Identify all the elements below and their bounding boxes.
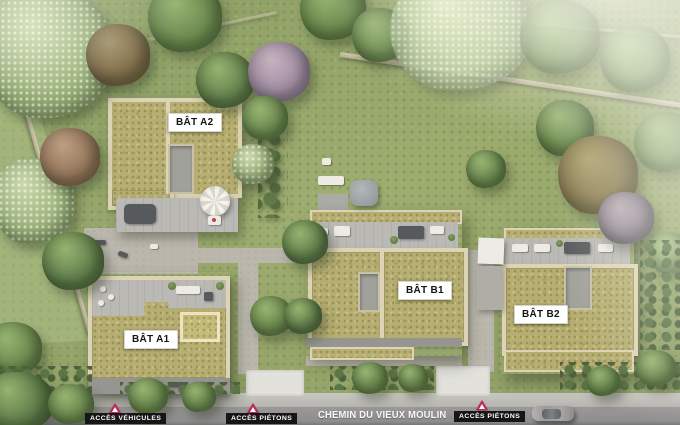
building-b2 (500, 228, 634, 374)
tree (232, 144, 274, 184)
building-a1-terrace-mid (144, 280, 170, 302)
tree (586, 366, 620, 396)
roof-plant (390, 236, 398, 244)
tree (634, 112, 680, 172)
roof-furniture (534, 244, 550, 252)
roof-furniture (212, 218, 216, 222)
tree (86, 24, 150, 86)
driveway (246, 370, 304, 396)
garden-pergola (350, 180, 378, 206)
path (168, 228, 198, 274)
access-marker-icon (476, 400, 488, 410)
tree (398, 364, 428, 392)
roof-furniture (108, 294, 114, 300)
tree (40, 128, 100, 186)
access-marker-icon (109, 403, 121, 413)
roof-furniture (124, 204, 156, 224)
tree (248, 42, 310, 102)
access-pedestrians-label-1: ACCÈS PIÉTONS (226, 413, 297, 424)
roof-furniture (98, 300, 104, 306)
roof-furniture (512, 244, 528, 252)
roof-plant (168, 282, 176, 290)
garden-furniture (322, 158, 331, 165)
roof-furniture (430, 226, 444, 234)
courtyard-item (150, 244, 158, 249)
tree (128, 378, 168, 414)
roof-furniture (100, 286, 106, 292)
roof-furniture (334, 226, 350, 236)
driveway (436, 366, 490, 396)
tree (196, 52, 254, 108)
road-name: CHEMIN DU VIEUX MOULIN (318, 409, 446, 421)
garden-furniture (318, 176, 344, 185)
tree (148, 0, 222, 52)
roof-furniture (564, 242, 590, 254)
tree (242, 96, 288, 140)
tree (282, 220, 328, 264)
tree (636, 350, 676, 386)
tree (42, 232, 104, 290)
car (532, 406, 574, 421)
building-b2-stairwell (564, 266, 592, 310)
shrubs (640, 240, 680, 350)
garden-patio (318, 194, 348, 210)
annex-shed (477, 266, 502, 310)
roof-plant (448, 234, 455, 241)
building-a1-terrace-left (92, 280, 144, 316)
tree (598, 192, 654, 244)
building-label-b1: BÂT B1 (398, 281, 452, 300)
access-pedestrians-label-2: ACCÈS PIÉTONS (454, 411, 525, 422)
tree (182, 382, 216, 412)
roof-plant (216, 282, 224, 290)
annex-canopy (478, 238, 505, 265)
tree (466, 150, 506, 188)
building-a2-stairwell (168, 144, 194, 194)
building-b1-walkway (306, 338, 462, 347)
roof-plant (556, 240, 563, 247)
building-label-a2: BÂT A2 (168, 113, 222, 132)
tree (284, 298, 322, 334)
tree (520, 0, 600, 74)
roof-furniture (176, 286, 200, 294)
access-marker-icon (247, 403, 259, 413)
access-vehicles-label: ACCÈS VÉHICULES (85, 413, 166, 424)
roof-furniture (204, 292, 213, 301)
building-a1-roof-patch (180, 312, 220, 342)
building-label-b2: BÂT B2 (514, 305, 568, 324)
roof-furniture (398, 226, 424, 239)
building-label-a1: BÂT A1 (124, 330, 178, 349)
building-b1-roof-strip-bottom (310, 347, 414, 360)
tree (600, 26, 670, 92)
tree (352, 362, 388, 394)
building-b1-stairwell (358, 272, 380, 312)
roof-furniture (598, 244, 613, 252)
sidewalk (0, 393, 680, 408)
site-plan: BÂT A2 BÂT A1 BÂT B1 BÂT B2 ACCÈS VÉHICU… (0, 0, 680, 425)
parasol (200, 186, 230, 216)
